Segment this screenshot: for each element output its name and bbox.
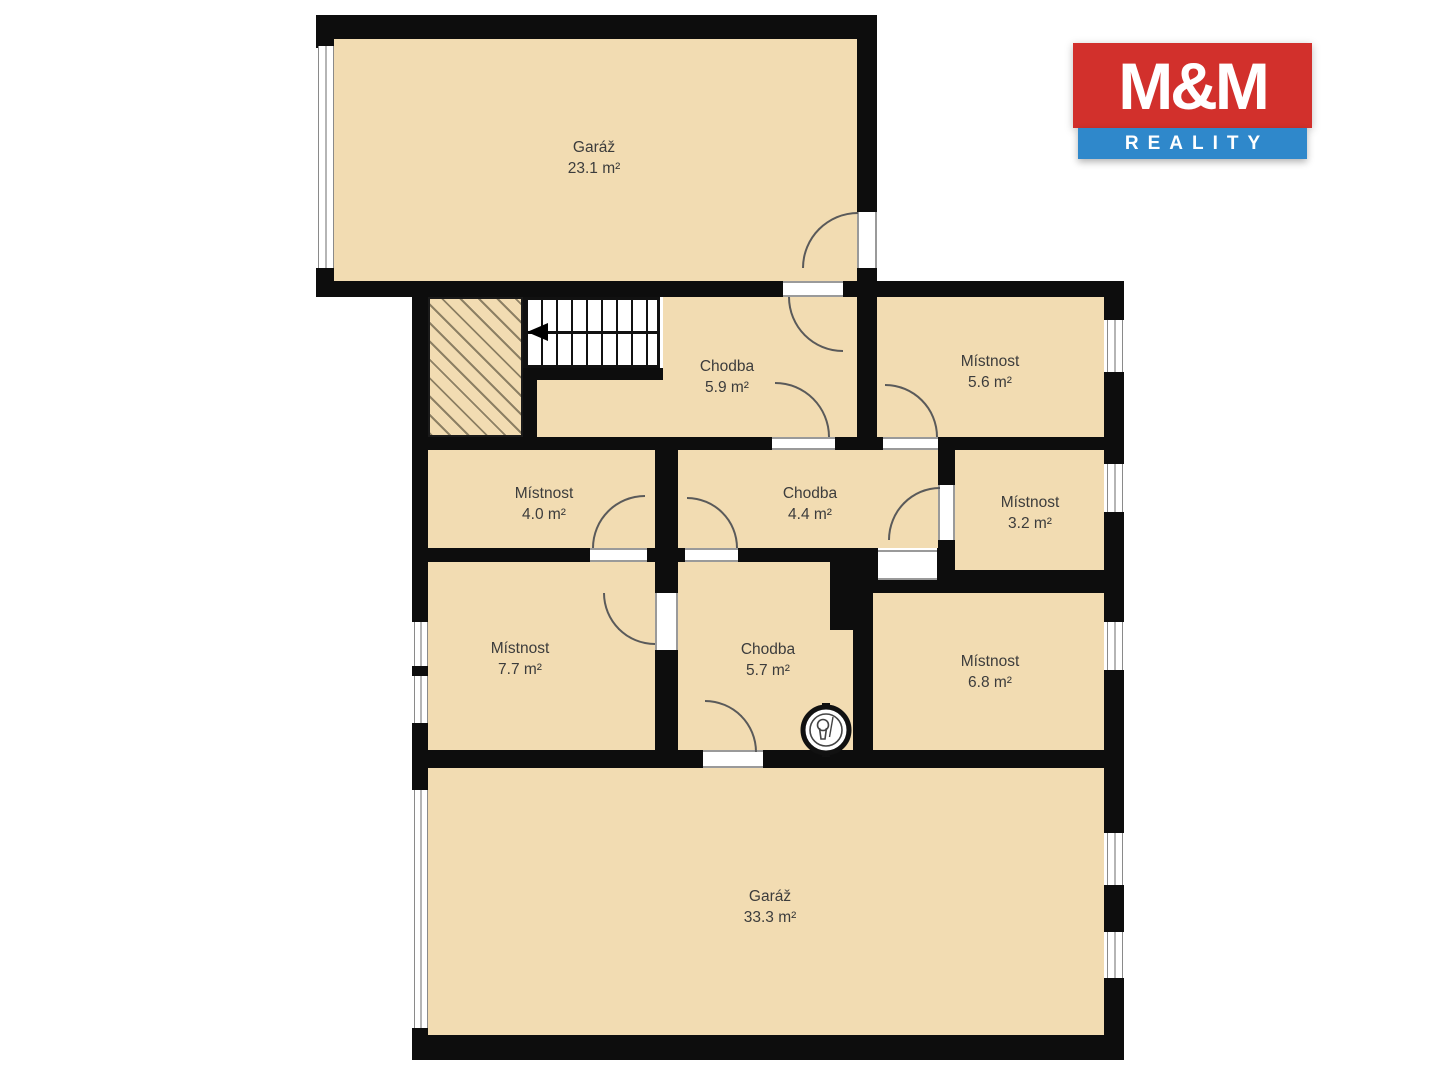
- door-opening: [655, 593, 678, 650]
- room-label-garage-bottom: Garáž 33.3 m²: [744, 886, 797, 928]
- wall: [835, 437, 883, 450]
- window: [1107, 932, 1123, 978]
- wall: [843, 281, 1124, 297]
- room-name: Místnost: [515, 483, 574, 504]
- door-opening: [772, 437, 835, 450]
- wall: [873, 580, 955, 593]
- room-name: Místnost: [1001, 492, 1060, 513]
- wall: [647, 548, 685, 562]
- room-label-chodba-57: Chodba 5.7 m²: [741, 639, 795, 681]
- room-area: 4.0 m²: [515, 504, 574, 525]
- door-opening: [857, 212, 877, 268]
- door-opening: [703, 750, 763, 768]
- door-opening: [590, 548, 647, 562]
- window: [1107, 320, 1123, 372]
- wall: [1104, 885, 1124, 932]
- hatched-void-area: [428, 297, 523, 437]
- wall: [412, 437, 772, 450]
- window: [1107, 622, 1123, 670]
- mm-reality-logo-bar: REALITY: [1078, 128, 1307, 159]
- room-label-mistnost-68: Místnost 6.8 m²: [961, 651, 1020, 693]
- wall: [412, 297, 428, 622]
- room-area: 4.4 m²: [783, 504, 837, 525]
- floor-plan: Garáž 23.1 m² Chodba 5.9 m² Místnost 5.6…: [0, 0, 1440, 1080]
- room-label-chodba-44: Chodba 4.4 m²: [783, 483, 837, 525]
- door-opening: [783, 281, 843, 297]
- wall: [938, 450, 955, 485]
- room-name: Garáž: [568, 137, 621, 158]
- room-label-mistnost-56: Místnost 5.6 m²: [961, 351, 1020, 393]
- wall: [1104, 512, 1124, 622]
- room-area: 7.7 m²: [491, 659, 550, 680]
- room-area: 33.3 m²: [744, 907, 797, 928]
- mm-reality-logo: M&M: [1073, 43, 1312, 128]
- wall: [412, 1035, 1124, 1060]
- wall: [655, 437, 678, 548]
- wall: [412, 723, 428, 752]
- door-opening: [685, 548, 738, 562]
- door-opening: [883, 437, 938, 450]
- wall: [412, 750, 703, 768]
- room-name: Chodba: [700, 356, 754, 377]
- wall: [523, 380, 537, 437]
- room-name: Chodba: [783, 483, 837, 504]
- logo-text-bottom: REALITY: [1116, 133, 1269, 155]
- wall: [857, 297, 877, 437]
- window: [1107, 833, 1123, 885]
- room-label-mistnost-40: Místnost 4.0 m²: [515, 483, 574, 525]
- door-opening: [938, 485, 955, 540]
- room-area: 5.7 m²: [741, 660, 795, 681]
- room-name: Místnost: [961, 351, 1020, 372]
- door-opening: [878, 550, 937, 580]
- room-area: 3.2 m²: [1001, 513, 1060, 534]
- window: [318, 46, 334, 268]
- wall: [1104, 297, 1124, 320]
- wall: [857, 15, 877, 212]
- stairs-direction-arrow-icon: [527, 323, 548, 341]
- room-label-mistnost-77: Místnost 7.7 m²: [491, 638, 550, 680]
- window-mullion: [412, 666, 428, 676]
- wall: [955, 570, 1124, 593]
- wall: [316, 281, 783, 297]
- wall: [412, 548, 590, 562]
- wall: [853, 593, 873, 752]
- wall: [316, 15, 877, 39]
- room-name: Místnost: [961, 651, 1020, 672]
- room-name: Místnost: [491, 638, 550, 659]
- wall: [738, 548, 853, 562]
- window: [1107, 464, 1123, 512]
- boiler-icon: [799, 703, 853, 757]
- logo-text-top: M&M: [1118, 48, 1267, 124]
- room-label-garage-top: Garáž 23.1 m²: [568, 137, 621, 179]
- wall: [523, 368, 663, 380]
- room-area: 23.1 m²: [568, 158, 621, 179]
- room-area: 5.9 m²: [700, 377, 754, 398]
- wall: [655, 650, 678, 750]
- room-label-mistnost-32: Místnost 3.2 m²: [1001, 492, 1060, 534]
- room-chodba-59-floor: [537, 380, 663, 437]
- room-label-chodba-59: Chodba 5.9 m²: [700, 356, 754, 398]
- room-area: 6.8 m²: [961, 672, 1020, 693]
- window: [414, 790, 428, 1028]
- wall: [1104, 372, 1124, 464]
- staircase: [523, 297, 660, 368]
- room-name: Chodba: [741, 639, 795, 660]
- room-name: Garáž: [744, 886, 797, 907]
- room-area: 5.6 m²: [961, 372, 1020, 393]
- wall: [655, 562, 678, 593]
- wall: [938, 437, 1124, 450]
